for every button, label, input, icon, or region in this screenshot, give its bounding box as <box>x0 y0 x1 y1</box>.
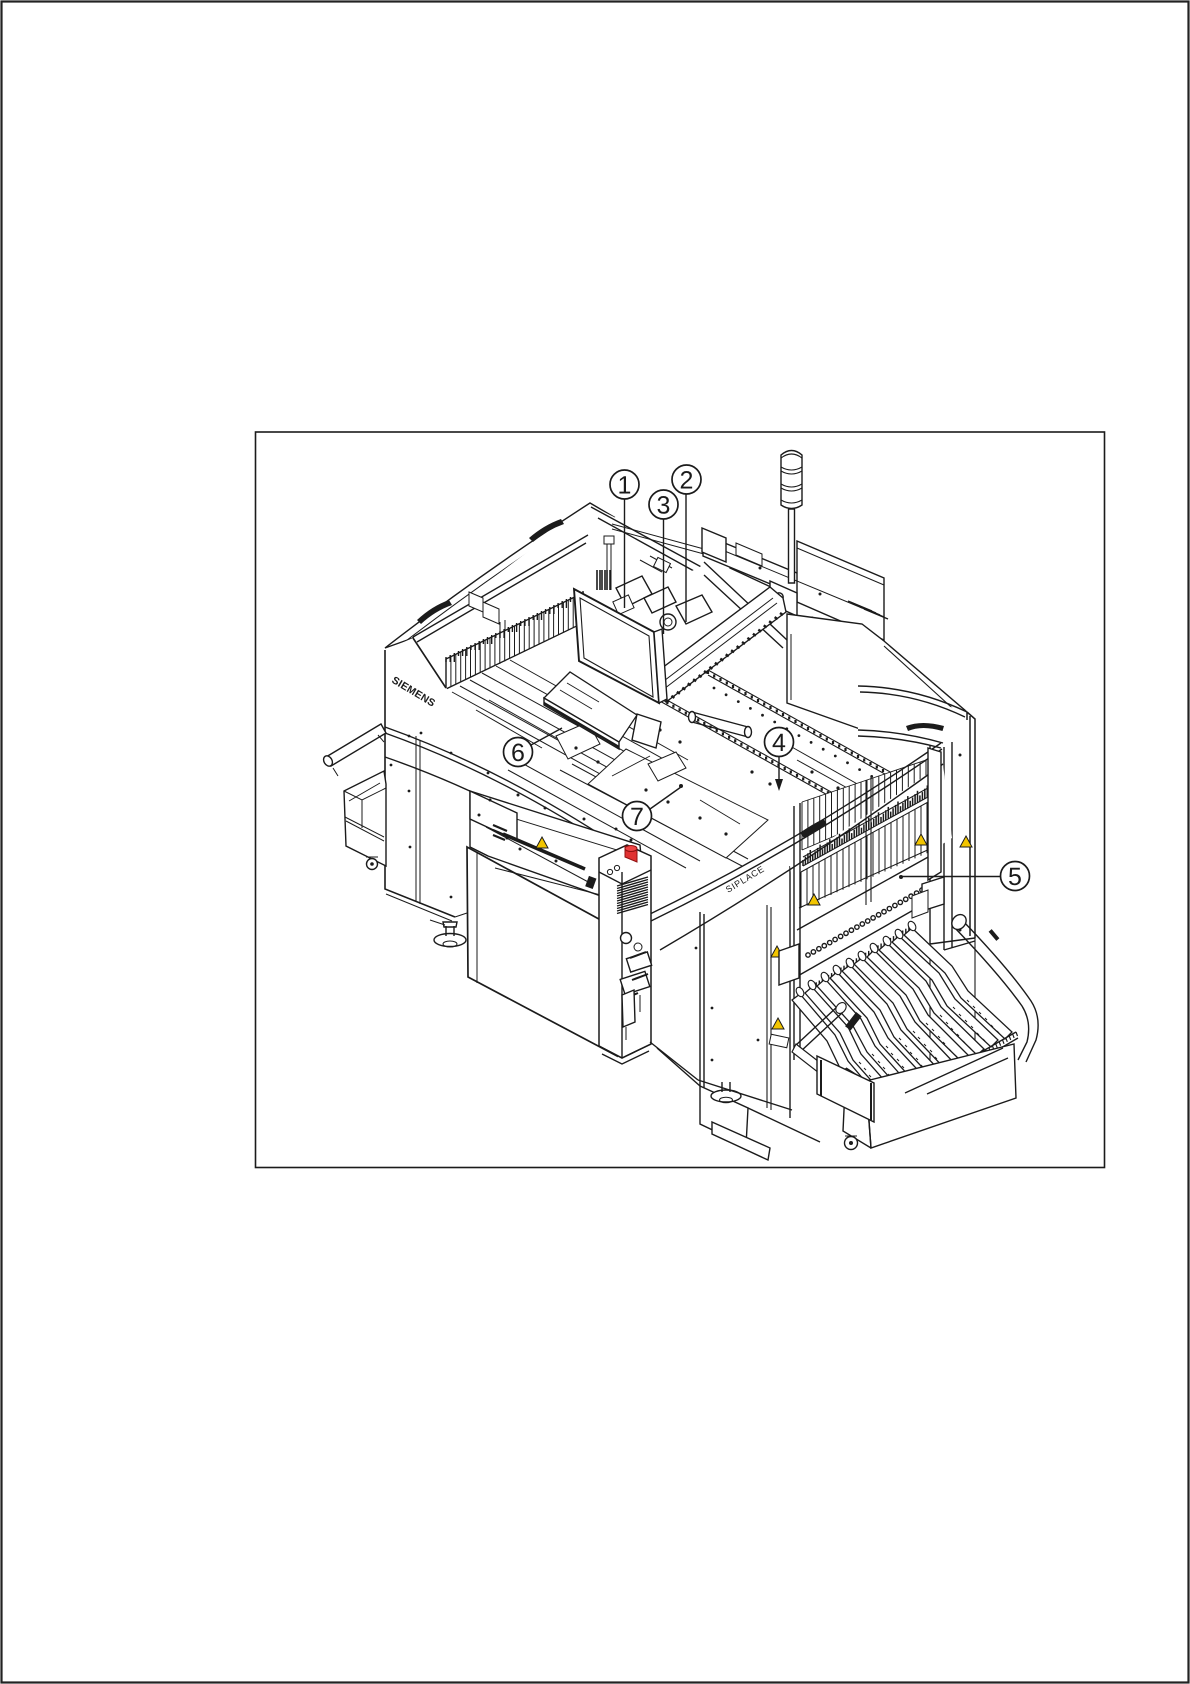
svg-text:6: 6 <box>511 739 525 767</box>
svg-text:5: 5 <box>1008 863 1022 891</box>
svg-text:3: 3 <box>657 491 671 519</box>
svg-text:1: 1 <box>618 471 632 499</box>
svg-text:2: 2 <box>680 466 694 494</box>
svg-text:7: 7 <box>630 803 644 831</box>
svg-text:4: 4 <box>772 729 786 757</box>
